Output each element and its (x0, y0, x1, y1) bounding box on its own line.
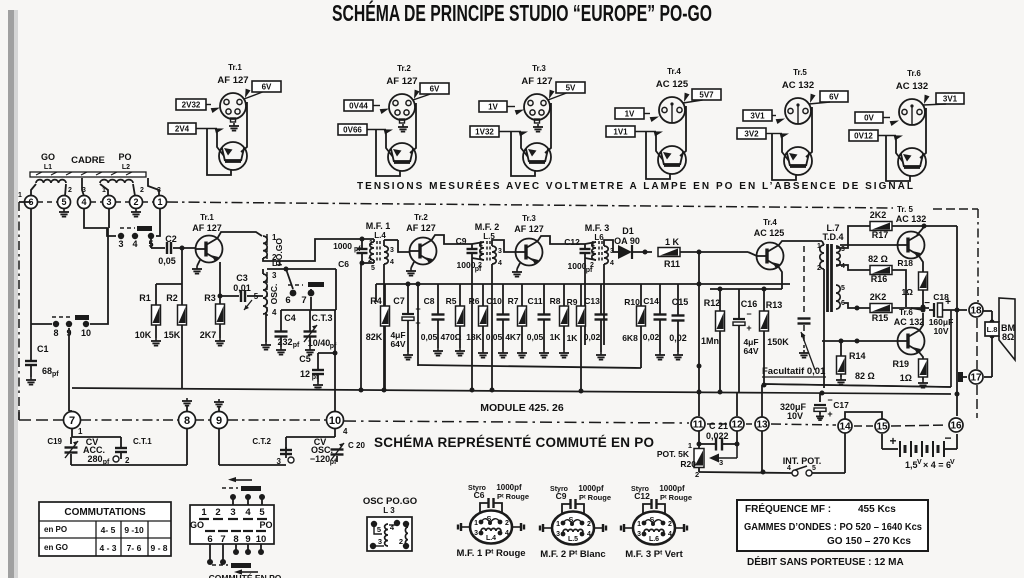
svg-text:1Mn: 1Mn (701, 336, 719, 346)
svg-text:C9: C9 (556, 491, 567, 501)
svg-text:M.F. 3: M.F. 3 (585, 223, 610, 233)
svg-text:Tr.6: Tr.6 (899, 308, 913, 317)
svg-text:9 -10: 9 -10 (124, 525, 144, 535)
svg-text:4: 4 (587, 531, 591, 538)
svg-text:10V: 10V (787, 411, 803, 421)
svg-text:R19: R19 (892, 359, 909, 369)
svg-text:−: − (924, 298, 930, 309)
svg-text:R15: R15 (872, 313, 889, 323)
svg-text:Tr.5: Tr.5 (793, 68, 807, 77)
svg-text:3: 3 (106, 197, 111, 207)
svg-text:C4: C4 (284, 313, 296, 323)
svg-text:C1: C1 (37, 344, 49, 354)
svg-text:−: − (746, 309, 751, 319)
svg-text:3: 3 (719, 458, 723, 467)
svg-text:82 Ω: 82 Ω (855, 371, 875, 381)
svg-text:4: 4 (787, 465, 791, 472)
svg-text:9: 9 (245, 534, 250, 545)
svg-text:2: 2 (215, 507, 220, 518)
svg-text:4: 4 (841, 263, 845, 270)
svg-text:−120: −120 (310, 454, 330, 464)
svg-text:4: 4 (610, 260, 614, 267)
svg-text:+: + (889, 434, 896, 448)
svg-text:9 - 8: 9 - 8 (150, 543, 167, 553)
svg-text:Pᵗ Rouge: Pᵗ Rouge (497, 492, 529, 501)
svg-text:T.D.4: T.D.4 (822, 232, 843, 242)
svg-text:1: 1 (817, 243, 821, 250)
svg-text:1V: 1V (625, 109, 635, 118)
svg-text:FRÉQUENCE MF :: FRÉQUENCE MF : (745, 502, 831, 515)
svg-text:AC 132: AC 132 (896, 214, 927, 224)
svg-text:10/40: 10/40 (308, 338, 331, 348)
svg-text:0V12: 0V12 (854, 131, 873, 140)
svg-text:1: 1 (18, 192, 22, 199)
svg-text:4 - 3: 4 - 3 (99, 543, 116, 553)
svg-text:C 20: C 20 (348, 441, 365, 450)
svg-text:3: 3 (556, 531, 560, 538)
svg-text:Tr.1: Tr.1 (200, 213, 214, 222)
svg-text:R4: R4 (370, 296, 382, 306)
svg-text:SCHÉMA DE PRINCIPE STUDIO: SCHÉMA DE PRINCIPE STUDIO “EUROPE” PO-GO (332, 0, 712, 26)
svg-text:R16: R16 (871, 274, 888, 284)
svg-text:1V1: 1V1 (613, 127, 628, 136)
svg-text:1000pf: 1000pf (578, 484, 604, 493)
svg-text:455 Kcs: 455 Kcs (858, 504, 896, 515)
svg-text:R18: R18 (897, 258, 913, 268)
svg-text:6V: 6V (829, 92, 839, 101)
svg-text:0V: 0V (864, 113, 874, 122)
svg-text:R17: R17 (872, 230, 889, 240)
svg-text:pf: pf (52, 371, 59, 378)
svg-text:6V: 6V (262, 82, 272, 91)
svg-text:1: 1 (637, 521, 641, 528)
svg-text:GO 150 – 270 Kcs: GO 150 – 270 Kcs (827, 536, 911, 547)
svg-text:R7: R7 (508, 296, 519, 306)
svg-text:13: 13 (756, 420, 768, 431)
svg-text:V: V (917, 459, 922, 466)
svg-text:Facultatif 0,01: Facultatif 0,01 (762, 366, 826, 377)
svg-text:AF 127: AF 127 (192, 223, 222, 233)
svg-text:82 Ω: 82 Ω (868, 254, 888, 264)
svg-text:C 21: C 21 (709, 421, 728, 431)
svg-text:Tr.2: Tr.2 (397, 64, 411, 73)
svg-text:11: 11 (693, 420, 704, 431)
svg-text:8: 8 (53, 328, 58, 338)
svg-text:5V: 5V (566, 83, 576, 92)
svg-text:10: 10 (81, 328, 91, 338)
svg-text:C12: C12 (634, 491, 650, 501)
svg-text:C.T.2: C.T.2 (252, 437, 271, 446)
svg-text:16: 16 (950, 421, 962, 432)
svg-text:18: 18 (970, 306, 982, 317)
svg-text:× 4 = 6: × 4 = 6 (923, 460, 951, 470)
svg-text:AF 127: AF 127 (386, 76, 417, 87)
svg-text:V: V (950, 459, 955, 466)
svg-text:pf: pf (293, 342, 300, 349)
svg-text:8: 8 (233, 534, 238, 545)
svg-text:1Ω: 1Ω (901, 287, 913, 297)
svg-text:1V: 1V (488, 102, 498, 111)
svg-text:L6: L6 (594, 233, 604, 242)
svg-text:PO: PO (259, 520, 272, 530)
svg-text:Tr.3: Tr.3 (532, 64, 546, 73)
svg-text:3V1: 3V1 (943, 94, 958, 103)
svg-text:3V2: 3V2 (744, 129, 759, 138)
svg-text:Tr.1: Tr.1 (228, 63, 242, 72)
svg-text:6: 6 (207, 534, 212, 545)
svg-text:3: 3 (474, 530, 478, 537)
svg-text:8: 8 (184, 415, 190, 427)
svg-text:4: 4 (245, 507, 251, 518)
svg-text:2: 2 (478, 262, 482, 269)
svg-text:COMMUTATIONS: COMMUTATIONS (64, 507, 146, 518)
svg-text:10V: 10V (933, 326, 948, 336)
svg-text:L.5: L.5 (568, 536, 578, 543)
svg-text:AF 127: AF 127 (217, 75, 248, 86)
svg-text:2: 2 (125, 456, 130, 465)
svg-text:3V1: 3V1 (750, 111, 765, 120)
svg-text:17: 17 (970, 373, 982, 384)
svg-text:4: 4 (498, 260, 502, 267)
svg-text:GO: GO (190, 520, 204, 530)
svg-text:+: + (945, 297, 951, 308)
svg-text:2K2: 2K2 (870, 210, 887, 220)
svg-text:L 3: L 3 (383, 506, 395, 515)
svg-text:15K: 15K (164, 330, 181, 340)
svg-text:C14: C14 (643, 296, 659, 306)
svg-text:2: 2 (68, 187, 72, 194)
svg-text:POT. 5K: POT. 5K (657, 449, 690, 459)
svg-text:C8: C8 (424, 296, 435, 306)
svg-text:2: 2 (505, 520, 509, 527)
svg-text:4- 5: 4- 5 (101, 525, 116, 535)
svg-text:3: 3 (841, 246, 845, 253)
svg-text:+: + (827, 409, 832, 419)
svg-text:2: 2 (590, 262, 594, 269)
svg-text:0,05: 0,05 (527, 332, 544, 342)
svg-text:1: 1 (201, 507, 207, 518)
svg-text:R1: R1 (139, 293, 151, 303)
svg-text:3: 3 (230, 507, 235, 518)
svg-text:C19: C19 (47, 437, 62, 446)
svg-text:C12: C12 (564, 237, 580, 247)
svg-text:3: 3 (637, 531, 641, 538)
svg-text:3: 3 (277, 457, 282, 466)
svg-text:0,05: 0,05 (486, 332, 503, 342)
svg-text:Tr.3: Tr.3 (522, 214, 536, 223)
svg-text:GO: GO (41, 152, 55, 162)
svg-text:0,02: 0,02 (643, 332, 660, 342)
svg-text:C6: C6 (338, 259, 349, 269)
svg-text:AF 127: AF 127 (521, 76, 552, 87)
svg-text:1 K: 1 K (665, 237, 680, 247)
svg-text:Tr.4: Tr.4 (667, 67, 681, 76)
svg-text:+: + (746, 323, 751, 333)
svg-text:280: 280 (87, 454, 102, 464)
svg-text:C.T.3: C.T.3 (311, 313, 332, 323)
svg-text:0V44: 0V44 (349, 101, 368, 110)
svg-text:1: 1 (78, 427, 83, 436)
svg-text:470Ω: 470Ω (441, 332, 462, 342)
svg-text:0V66: 0V66 (343, 125, 362, 134)
svg-text:4: 4 (668, 531, 672, 538)
svg-text:C10: C10 (486, 296, 502, 306)
svg-text:15: 15 (876, 422, 888, 433)
svg-text:2V4: 2V4 (175, 124, 190, 133)
svg-text:Pᵗ Rouge: Pᵗ Rouge (660, 493, 692, 502)
svg-text:1: 1 (369, 240, 373, 247)
svg-text:5: 5 (812, 465, 816, 472)
svg-text:L1: L1 (44, 164, 52, 171)
svg-text:0,02: 0,02 (584, 332, 601, 342)
svg-text:R2: R2 (166, 293, 178, 303)
svg-text:2: 2 (399, 537, 403, 546)
svg-text:1V32: 1V32 (475, 127, 494, 136)
svg-text:OA 90: OA 90 (614, 236, 640, 246)
svg-text:5: 5 (254, 292, 259, 301)
svg-text:L.4: L.4 (486, 535, 496, 542)
svg-text:5: 5 (377, 525, 381, 534)
svg-text:1: 1 (474, 520, 478, 527)
svg-text:8Ω: 8Ω (1002, 332, 1014, 342)
svg-text:2: 2 (817, 265, 821, 272)
svg-text:3: 3 (118, 239, 123, 249)
svg-text:14: 14 (839, 422, 851, 433)
svg-text:−: − (827, 395, 832, 405)
svg-text:5: 5 (259, 507, 265, 518)
svg-text:6V: 6V (430, 84, 440, 93)
svg-text:1000: 1000 (333, 241, 352, 251)
svg-text:7: 7 (301, 295, 306, 306)
svg-text:C7: C7 (393, 296, 405, 306)
svg-text:7- 6: 7- 6 (127, 543, 142, 553)
svg-text:4: 4 (132, 239, 137, 249)
svg-text:TENSIONS MESURÉES AVEC VOLT: TENSIONS MESURÉES AVEC VOLTMETRE A LAMPE… (357, 179, 913, 192)
svg-text:+: + (415, 318, 420, 328)
svg-text:1K: 1K (567, 333, 579, 343)
svg-text:R11: R11 (664, 259, 680, 269)
svg-text:AC 125: AC 125 (754, 228, 785, 238)
svg-text:R5: R5 (446, 296, 457, 306)
svg-text:en GO: en GO (44, 543, 68, 552)
svg-text:C13: C13 (584, 296, 600, 306)
svg-text:4K7: 4K7 (505, 332, 521, 342)
svg-text:Tr.4: Tr.4 (763, 218, 777, 227)
svg-text:DÉBIT SANS PORTEUSE : 12 M: DÉBIT SANS PORTEUSE : 12 MA (747, 555, 904, 568)
svg-text:R6: R6 (469, 296, 480, 306)
svg-text:OSC.: OSC. (269, 284, 279, 305)
svg-text:2K2: 2K2 (870, 292, 887, 302)
svg-text:C5: C5 (299, 354, 311, 364)
svg-text:7: 7 (69, 415, 75, 427)
svg-text:1000pf: 1000pf (659, 484, 685, 493)
svg-text:CADRE: CADRE (71, 155, 105, 166)
svg-text:AF 127: AF 127 (514, 224, 544, 234)
svg-text:L.8: L.8 (987, 325, 998, 334)
svg-text:en PO: en PO (44, 525, 67, 534)
svg-text:2: 2 (133, 197, 138, 207)
svg-text:5: 5 (479, 251, 483, 258)
svg-text:Tr.2: Tr.2 (414, 213, 428, 222)
svg-text:C17: C17 (833, 400, 849, 410)
svg-text:AC 132: AC 132 (782, 80, 814, 91)
svg-text:AF 127: AF 127 (406, 223, 436, 233)
svg-text:R14: R14 (849, 351, 866, 361)
svg-text:L.4: L.4 (374, 231, 386, 240)
svg-text:C16: C16 (741, 299, 758, 309)
svg-text:10K: 10K (135, 330, 152, 340)
svg-text:6: 6 (285, 295, 290, 306)
svg-text:R8: R8 (550, 296, 561, 306)
svg-text:R12: R12 (704, 298, 721, 308)
svg-text:4: 4 (272, 308, 277, 317)
svg-text:7: 7 (220, 534, 225, 545)
svg-text:AC 132: AC 132 (896, 81, 928, 92)
svg-text:pf: pf (330, 459, 337, 466)
svg-text:9: 9 (216, 415, 222, 427)
svg-text:AC 132: AC 132 (894, 317, 925, 327)
svg-text:4: 4 (343, 427, 348, 436)
svg-text:M.F. 1: M.F. 1 (366, 221, 391, 231)
svg-text:10: 10 (256, 534, 267, 545)
svg-text:AC 125: AC 125 (656, 79, 689, 90)
svg-text:C11: C11 (527, 296, 542, 306)
svg-text:0,022: 0,022 (706, 431, 729, 441)
svg-text:6K8: 6K8 (622, 333, 638, 343)
svg-text:L.6: L.6 (649, 536, 659, 543)
svg-text:64V: 64V (743, 346, 758, 356)
svg-text:150K: 150K (767, 337, 789, 347)
svg-text:L2: L2 (122, 164, 130, 171)
svg-text:R13: R13 (766, 300, 783, 310)
svg-text:5: 5 (591, 251, 595, 258)
svg-text:−: − (944, 431, 951, 445)
svg-text:2K7: 2K7 (200, 330, 217, 340)
svg-text:R20: R20 (680, 459, 696, 469)
svg-text:1000pf: 1000pf (496, 483, 522, 492)
svg-text:M.F. 3 Pᵗ Vert: M.F. 3 Pᵗ Vert (625, 549, 683, 560)
svg-text:1,5: 1,5 (905, 460, 918, 470)
svg-text:2: 2 (140, 187, 144, 194)
svg-text:3: 3 (390, 247, 394, 254)
svg-text:R3: R3 (204, 293, 216, 303)
svg-text:C.T.1: C.T.1 (133, 437, 152, 446)
svg-text:5: 5 (61, 197, 66, 207)
svg-text:Pᵗ Rouge: Pᵗ Rouge (579, 493, 611, 502)
svg-text:1: 1 (157, 197, 162, 207)
svg-text:2V32: 2V32 (182, 100, 201, 109)
svg-text:5V7: 5V7 (699, 90, 714, 99)
svg-text:82K: 82K (366, 332, 383, 342)
svg-text:Tr.6: Tr.6 (907, 69, 921, 78)
svg-text:C3: C3 (236, 273, 248, 283)
svg-text:1K: 1K (550, 332, 562, 342)
svg-text:2: 2 (587, 521, 591, 528)
svg-text:M.F. 2 Pᵗ Blanc: M.F. 2 Pᵗ Blanc (540, 549, 605, 560)
svg-text:0,05: 0,05 (421, 332, 438, 342)
svg-text:232: 232 (277, 337, 292, 347)
svg-text:64V: 64V (390, 339, 405, 349)
svg-text:18K: 18K (466, 332, 482, 342)
svg-text:4: 4 (505, 530, 509, 537)
svg-text:C6: C6 (474, 490, 485, 500)
svg-text:0,05: 0,05 (158, 256, 176, 266)
svg-text:3: 3 (378, 537, 382, 546)
svg-text:C15: C15 (672, 297, 689, 307)
svg-text:5: 5 (371, 265, 375, 272)
svg-text:4: 4 (390, 259, 394, 266)
svg-text:Tr. 5: Tr. 5 (897, 205, 914, 214)
svg-text:68: 68 (42, 366, 52, 376)
svg-text:PO: PO (118, 152, 131, 162)
svg-text:GAMMES D’ONDES : PO 520 –: GAMMES D’ONDES : PO 520 – 1640 Kcs (744, 522, 922, 533)
svg-text:3: 3 (498, 248, 502, 255)
svg-text:M.F. 2: M.F. 2 (475, 222, 500, 232)
svg-text:M.F. 1 Pᵗ Rouge: M.F. 1 Pᵗ Rouge (456, 548, 525, 559)
svg-text:COMMUTÉ EN PO: COMMUTÉ EN PO (209, 573, 282, 578)
svg-text:5: 5 (841, 285, 845, 292)
svg-text:2: 2 (668, 521, 672, 528)
svg-text:3: 3 (272, 271, 277, 280)
svg-text:4: 4 (81, 197, 86, 207)
svg-text:MODULE 425. 26: MODULE 425. 26 (480, 402, 564, 414)
svg-text:SCHÉMA REPRÉSENTÉ COMMUTÉ E: SCHÉMA REPRÉSENTÉ COMMUTÉ EN PO (374, 435, 654, 450)
svg-text:−: − (415, 304, 420, 314)
svg-text:1: 1 (556, 521, 560, 528)
svg-text:12: 12 (300, 369, 310, 379)
svg-text:1Ω: 1Ω (900, 373, 912, 383)
svg-text:1000: 1000 (568, 261, 587, 271)
svg-text:10: 10 (329, 415, 341, 427)
svg-text:D1: D1 (622, 226, 634, 236)
svg-text:12: 12 (731, 420, 743, 431)
